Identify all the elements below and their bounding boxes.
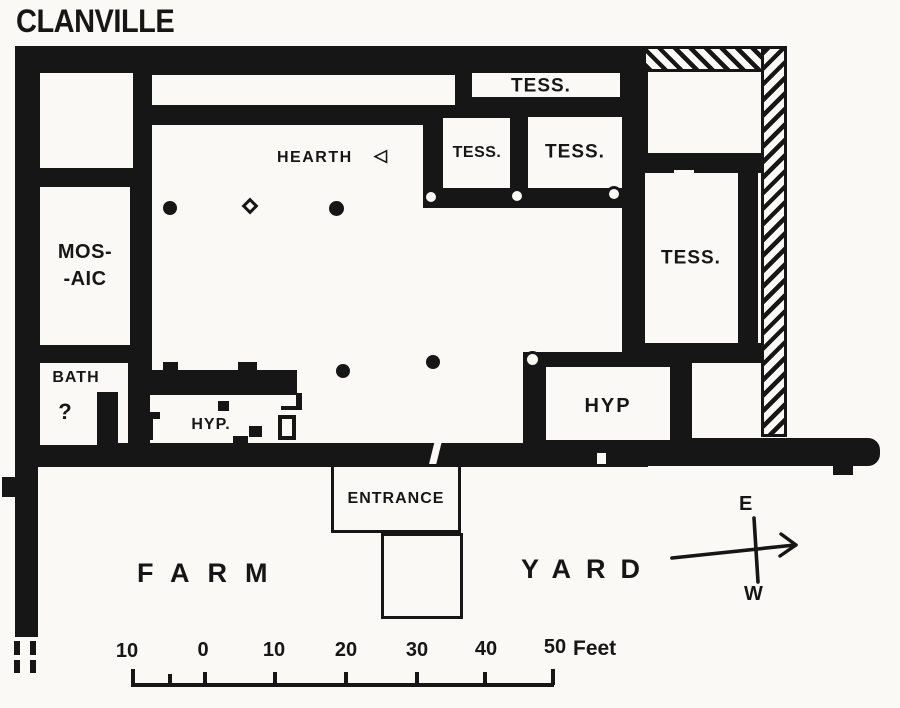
label-entrance: ENTRANCE <box>348 491 445 507</box>
pillar-dot <box>329 201 344 216</box>
scale-label: 20 <box>335 640 357 660</box>
label-hearth: HEARTH <box>277 150 353 166</box>
hatched-wall-north <box>643 46 764 72</box>
wall-hook-notch <box>281 395 296 406</box>
scale-tick <box>483 672 487 685</box>
scale-tick <box>344 672 348 685</box>
bracket-mark <box>147 412 160 419</box>
pillar-ring <box>606 186 622 202</box>
label-mosaic-line1: MOS- <box>58 239 112 266</box>
room-top-right <box>648 72 761 153</box>
label-yard: YARD <box>521 556 655 583</box>
scale-unit: Feet <box>573 638 616 659</box>
scale-tick <box>168 674 172 685</box>
scale-line <box>131 683 554 687</box>
label-tess-small-right: TESS. <box>545 143 605 162</box>
wall-bottom-right-bump <box>833 462 853 475</box>
pillar-dot <box>426 355 440 369</box>
pila-square <box>249 426 262 437</box>
wall-tess-right-east <box>738 153 758 365</box>
clanville-floor-plan: CLANVILLE <box>0 0 900 708</box>
pillar-ring <box>524 351 541 368</box>
label-hyp-right: HYP <box>584 396 631 416</box>
label-mosaic-line2: -AIC <box>58 266 112 293</box>
room-bath-sliver <box>118 392 128 443</box>
scale-tick <box>273 672 277 685</box>
label-bath-question: ? <box>58 401 71 423</box>
label-tess-east: TESS. <box>661 249 721 268</box>
scale-label: 0 <box>197 640 208 660</box>
hall-east <box>423 208 622 352</box>
wall-dash <box>30 660 36 673</box>
hall-south <box>297 368 523 443</box>
label-tess-small-left: TESS. <box>453 145 502 161</box>
pillar-ring <box>509 188 525 204</box>
wall-dash <box>30 641 36 655</box>
corridor-north <box>152 75 455 105</box>
scale-label: 10 <box>116 641 138 661</box>
wall-stub <box>233 436 248 445</box>
wall-left-lower <box>15 467 38 637</box>
label-farm: FARM <box>137 560 286 587</box>
wall-left-bump <box>2 477 15 497</box>
flue-jamb <box>278 415 296 440</box>
scale-label: 30 <box>406 640 428 660</box>
label-mosaic: MOS- -AIC <box>58 239 112 293</box>
label-tess-top: TESS. <box>511 77 571 96</box>
bracket-mark <box>147 419 153 440</box>
room-east-corridor <box>692 363 761 437</box>
hearth-icon: ◁ <box>374 147 387 164</box>
scale-tick <box>131 669 135 685</box>
door-notch <box>674 170 694 186</box>
pillar-dot <box>336 364 350 378</box>
wall-notch <box>597 453 606 464</box>
scale-label: 50 <box>544 637 566 657</box>
pila-square <box>218 401 229 411</box>
pillar-dot <box>163 201 177 215</box>
hatched-wall-east <box>761 46 787 437</box>
page-title: CLANVILLE <box>16 6 174 38</box>
entrance-steps <box>381 533 463 619</box>
scale-tick <box>551 669 555 685</box>
scale-tick <box>415 672 419 685</box>
scale-label: 40 <box>475 639 497 659</box>
wall-stub <box>163 362 178 372</box>
scale-tick <box>203 672 207 685</box>
scale-label: 10 <box>263 640 285 660</box>
pillar-ring <box>423 189 439 205</box>
label-bath: BATH <box>52 370 99 386</box>
room-top-left <box>40 73 133 168</box>
label-hyp-left: HYP. <box>191 417 230 433</box>
wall-dash <box>14 660 20 673</box>
wall-dash <box>14 641 20 655</box>
wall-stub <box>238 362 257 372</box>
compass-rose <box>655 470 825 610</box>
